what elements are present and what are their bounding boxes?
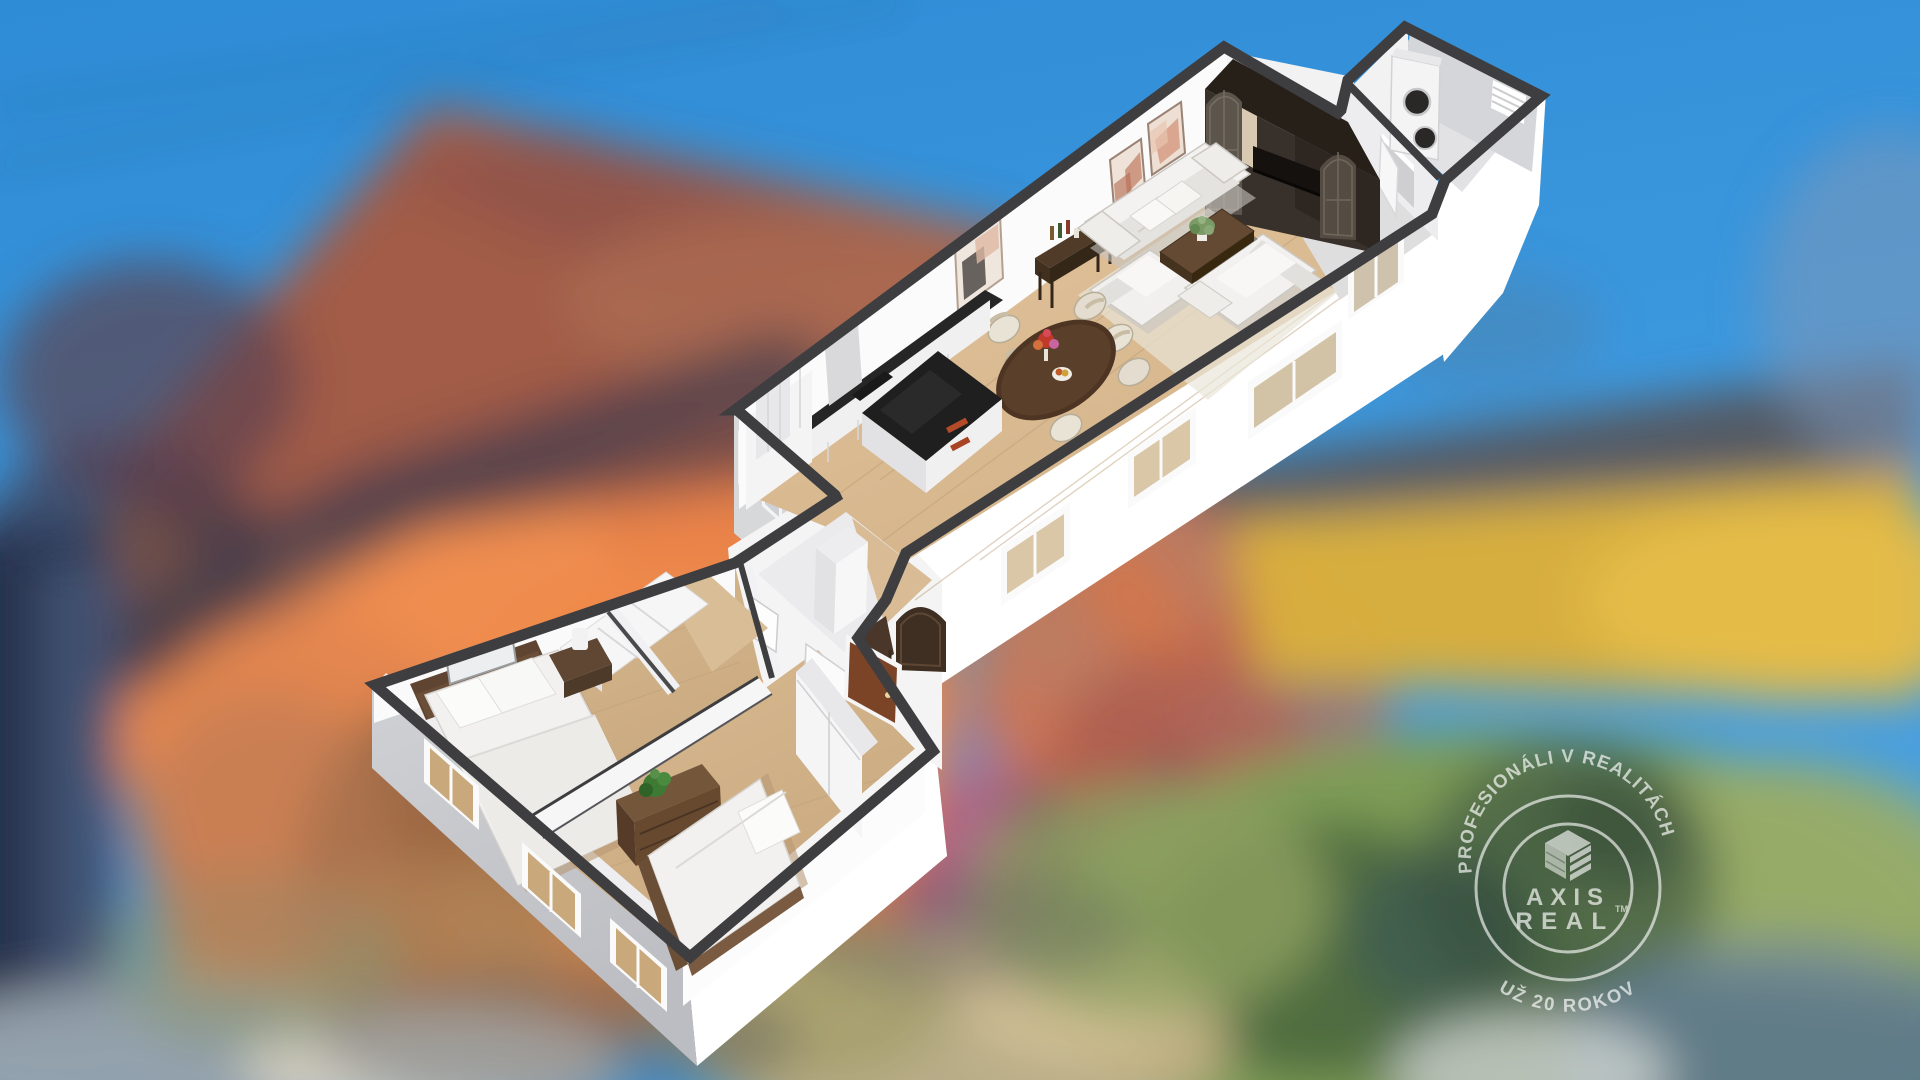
svg-text:REAL: REAL xyxy=(1515,908,1614,935)
svg-text:AXIS: AXIS xyxy=(1526,884,1610,911)
svg-text:TM: TM xyxy=(1615,904,1628,914)
